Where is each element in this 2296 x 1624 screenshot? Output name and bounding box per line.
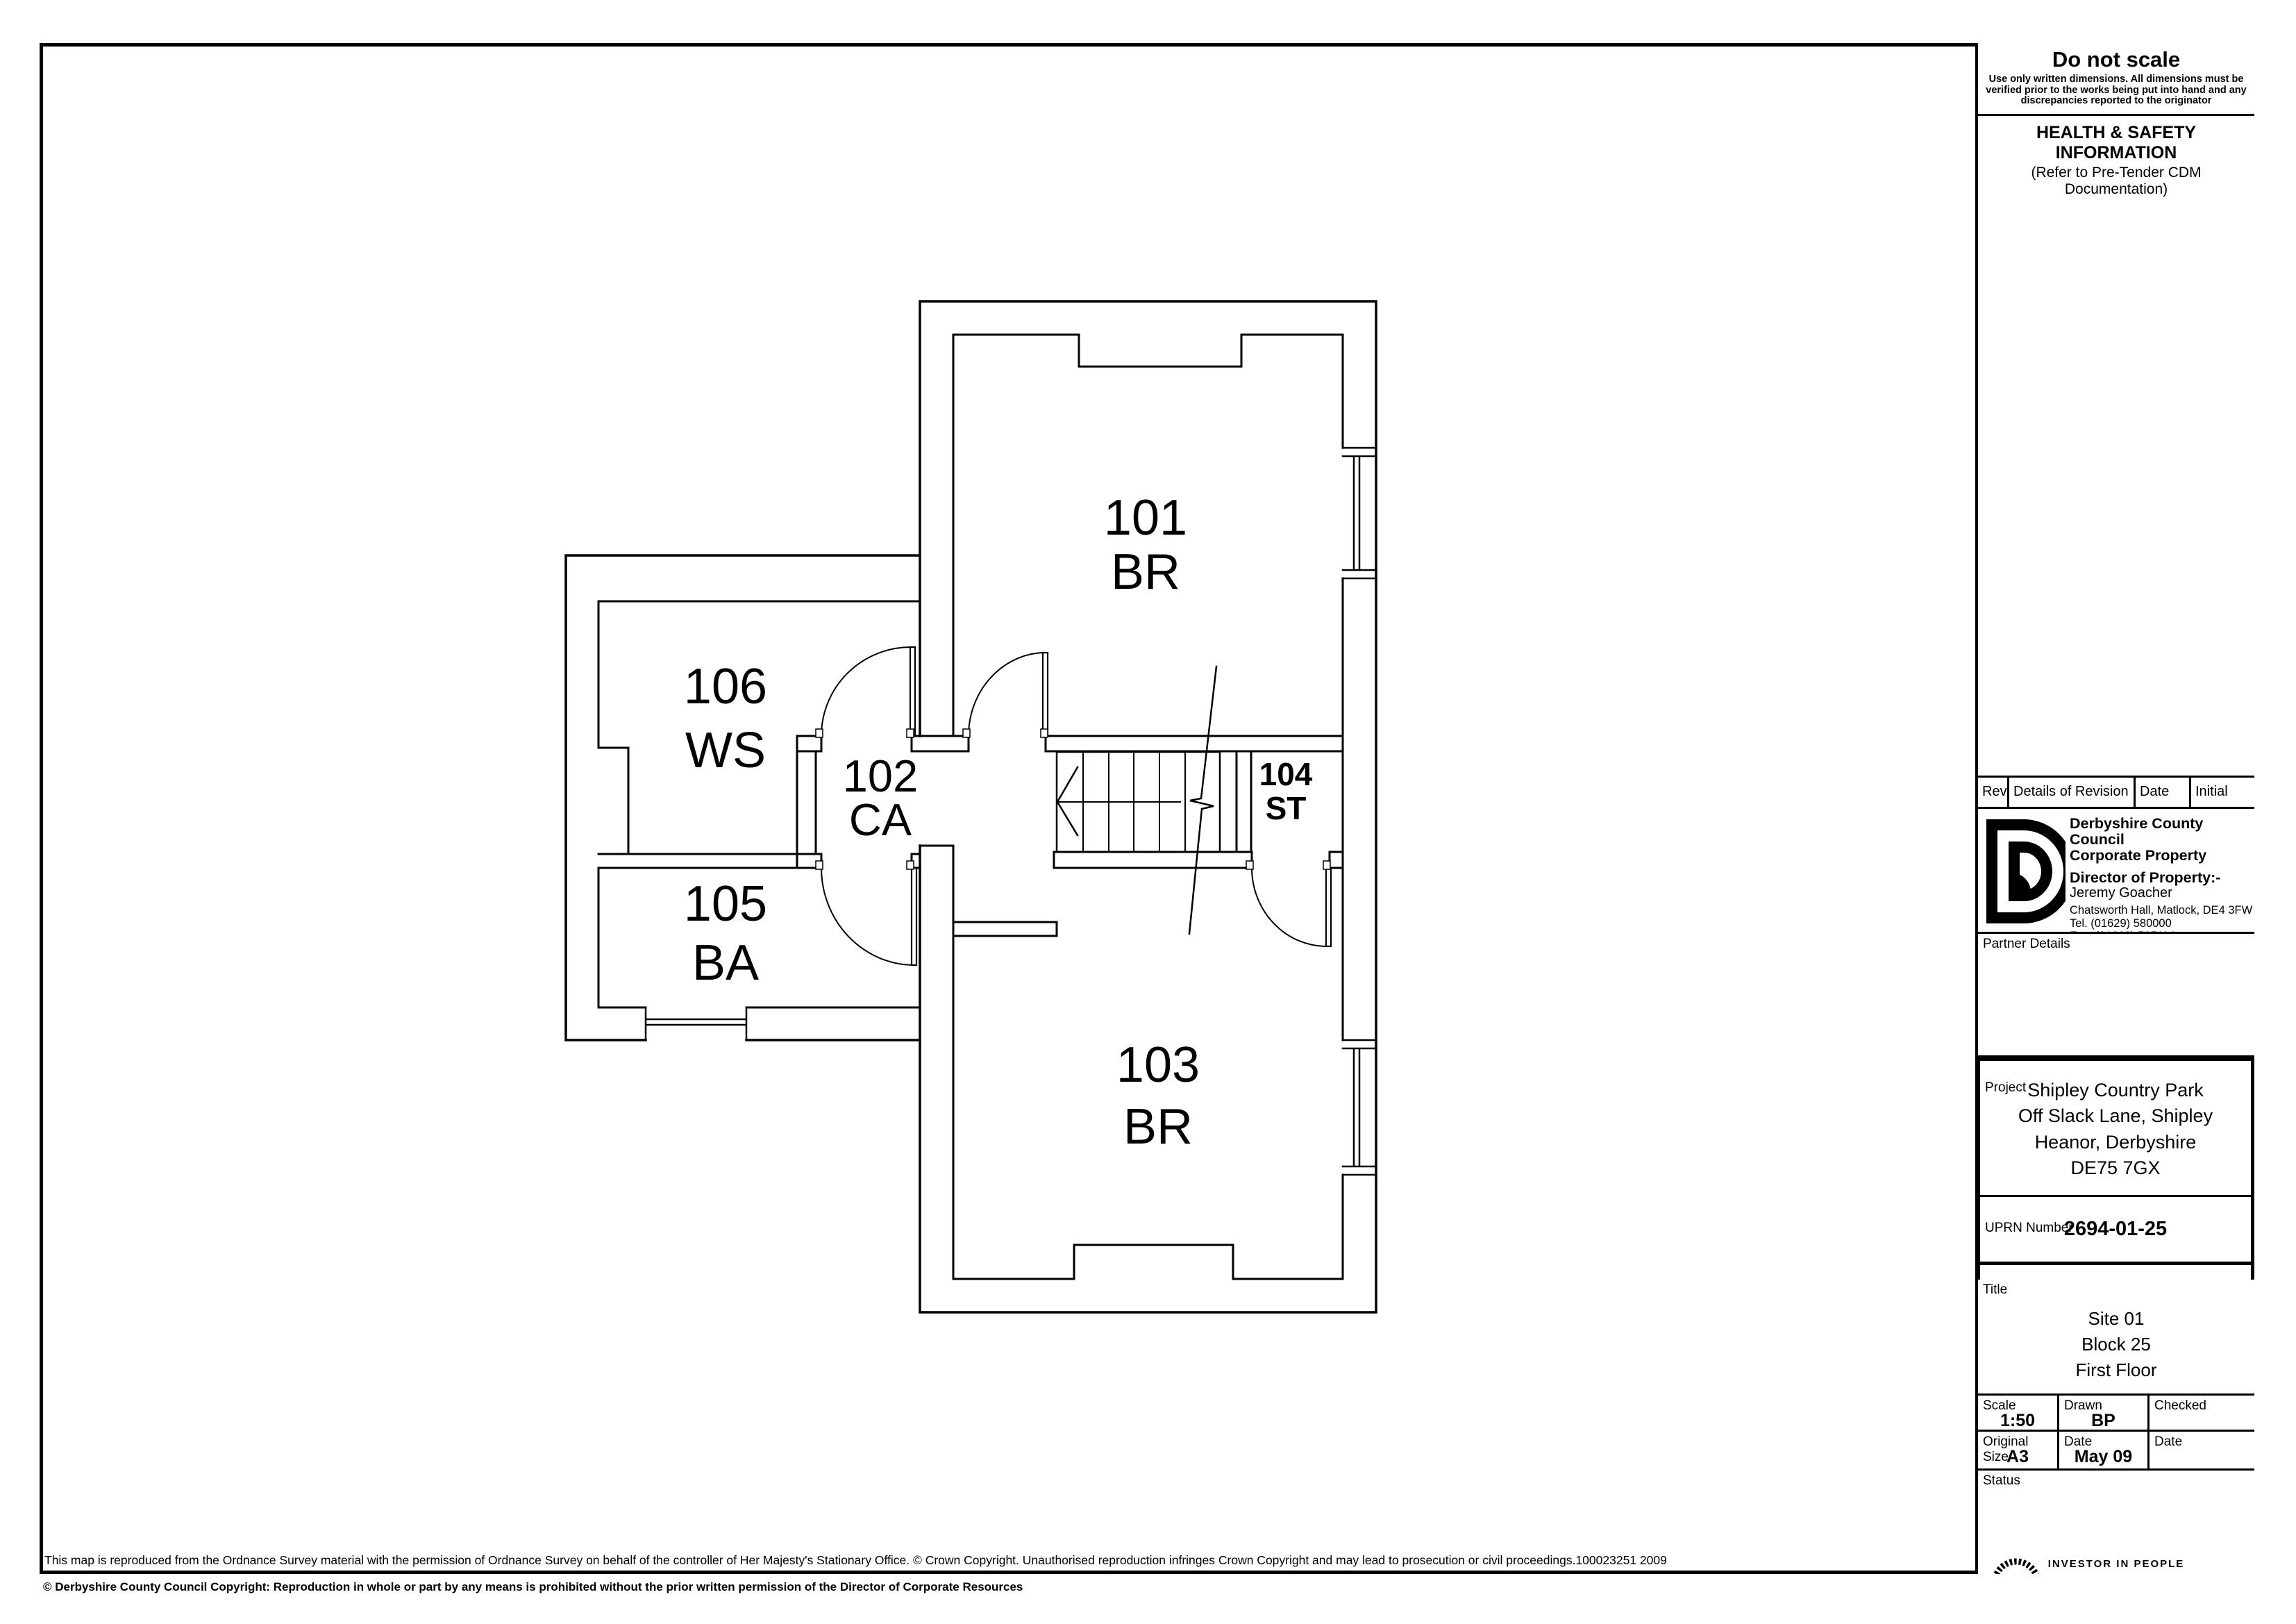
drawn-label: Drawn (2064, 1398, 2102, 1414)
status-box: Status INVESTOR IN PEOPLE (1978, 1471, 2254, 1574)
inner-walls (598, 335, 1343, 1279)
scale-value: 1:50 (1978, 1411, 2057, 1431)
drawn-cell: Drawn BP (2059, 1396, 2150, 1430)
investor-in-people-wreath-icon (1978, 1557, 2054, 1574)
scale-cell: Scale 1:50 (1978, 1396, 2059, 1430)
project-box: Project Shipley Country Park Off Slack L… (1977, 1057, 2254, 1280)
investor-in-people-logo: INVESTOR IN PEOPLE (1978, 1557, 2254, 1570)
room-number-101: 101 (1104, 490, 1187, 546)
stair-break-line (1189, 667, 1216, 934)
council-name: Derbyshire County Council (2070, 816, 2254, 848)
project-section: Project Shipley Country Park Off Slack L… (1980, 1078, 2251, 1197)
uprn-label: UPRN Number (1985, 1221, 2073, 1236)
do-not-scale-title: Do not scale (1978, 47, 2254, 72)
title-section: Title Site 01 Block 25 First Floor (1978, 1280, 2254, 1396)
council-address: Chatsworth Hall, Matlock, DE4 3FW (2070, 904, 2254, 916)
project-line-3: Heanor, Derbyshire (1980, 1130, 2251, 1155)
revision-col-initial: Initial (2191, 778, 2254, 807)
room-number-104: 104 (1259, 756, 1313, 792)
room-number-105: 105 (684, 876, 767, 932)
project-line-2: Off Slack Lane, Shipley (1980, 1103, 2251, 1129)
outer-walls (566, 301, 1376, 1312)
drawn-value: BP (2059, 1411, 2147, 1431)
room-number-106: 106 (684, 659, 767, 714)
do-not-scale-box: Do not scale Use only written dimensions… (1978, 43, 2254, 116)
checked-cell: Checked (2150, 1396, 2254, 1430)
revision-table-header: Rev. Details of Revision Date Initial (1978, 778, 2254, 809)
drawing-sheet: 101 BR 102 CA 103 BR 104 ST 105 BA 106 W… (0, 0, 2296, 1624)
health-safety-box: HEALTH & SAFETY INFORMATION (Refer to Pr… (1978, 116, 2254, 778)
council-copyright: © Derbyshire County Council Copyright: R… (43, 1580, 1848, 1594)
door-arc-101 (969, 653, 1043, 736)
size-date-row: Original Size A3 Date May 09 Date (1978, 1432, 2254, 1471)
project-label: Project (1985, 1080, 2026, 1096)
title-label: Title (1983, 1282, 2007, 1298)
door-arc-106 (821, 647, 910, 736)
director-label: Director of Property:- (2070, 870, 2254, 886)
uprn-section: UPRN Number 2694-01-25 (1980, 1218, 2251, 1265)
checked-label: Checked (2154, 1398, 2206, 1414)
ordnance-survey-copyright: This map is reproduced from the Ordnance… (44, 1553, 1968, 1568)
stair-treads (1057, 752, 1185, 852)
do-not-scale-note: Use only written dimensions. All dimensi… (1984, 74, 2249, 107)
council-tel: Tel. (01629) 580000 (2070, 917, 2254, 930)
title-block: Do not scale Use only written dimensions… (1975, 43, 2254, 1574)
door-leaf-105 (912, 868, 916, 965)
council-dept: Corporate Property (2070, 848, 2254, 864)
title-line-1: Site 01 (1978, 1306, 2254, 1332)
health-safety-subtitle: (Refer to Pre-Tender CDM Documentation) (1978, 165, 2254, 198)
floor-plan: 101 BR 102 CA 103 BR 104 ST 105 BA 106 W… (0, 0, 1975, 1624)
original-size-cell: Original Size A3 (1978, 1432, 2059, 1468)
date-checked-label: Date (2154, 1434, 2182, 1450)
revision-col-details: Details of Revision (2009, 778, 2136, 807)
council-text: Derbyshire County Council Corporate Prop… (2070, 816, 2254, 934)
door-leaf-106 (910, 647, 915, 736)
door-leaf-104 (1326, 868, 1331, 946)
date-checked-cell: Date (2150, 1432, 2254, 1468)
director-name: Jeremy Goacher (2070, 886, 2254, 901)
title-line-3: First Floor (1978, 1357, 2254, 1383)
project-line-4: DE75 7GX (1980, 1155, 2251, 1181)
room-labels: 101 BR 102 CA 103 BR 104 ST 105 BA 106 W… (684, 490, 1313, 1155)
room-code-104: ST (1266, 790, 1307, 826)
date-drawn-value: May 09 (2059, 1447, 2147, 1467)
door-arc-105 (821, 868, 914, 965)
health-safety-title: HEALTH & SAFETY INFORMATION (1978, 123, 2254, 163)
door-arc-104 (1252, 868, 1327, 946)
room-code-101: BR (1111, 544, 1180, 600)
room-number-103: 103 (1116, 1037, 1200, 1093)
date-drawn-cell: Date May 09 (2059, 1432, 2150, 1468)
partner-details-box: Partner Details (1978, 934, 2254, 1057)
revision-col-date: Date (2136, 778, 2191, 807)
date-drawn-label: Date (2064, 1434, 2092, 1450)
door-leaf-101 (1043, 653, 1048, 736)
original-size-label: Original Size (1983, 1434, 2057, 1465)
council-block: Derbyshire County Council Corporate Prop… (1978, 809, 2254, 934)
status-label: Status (1983, 1473, 2020, 1489)
room-code-106: WS (685, 723, 766, 778)
scale-row: Scale 1:50 Drawn BP Checked (1978, 1396, 2254, 1432)
partner-details-label: Partner Details (1983, 937, 2070, 952)
room-code-105: BA (692, 935, 759, 991)
room-code-102: CA (849, 794, 912, 845)
title-line-2: Block 25 (1978, 1332, 2254, 1357)
staircase (1057, 667, 1220, 934)
room-code-103: BR (1123, 1099, 1193, 1155)
revision-col-rev: Rev. (1978, 778, 2009, 807)
scale-label: Scale (1983, 1398, 2016, 1414)
